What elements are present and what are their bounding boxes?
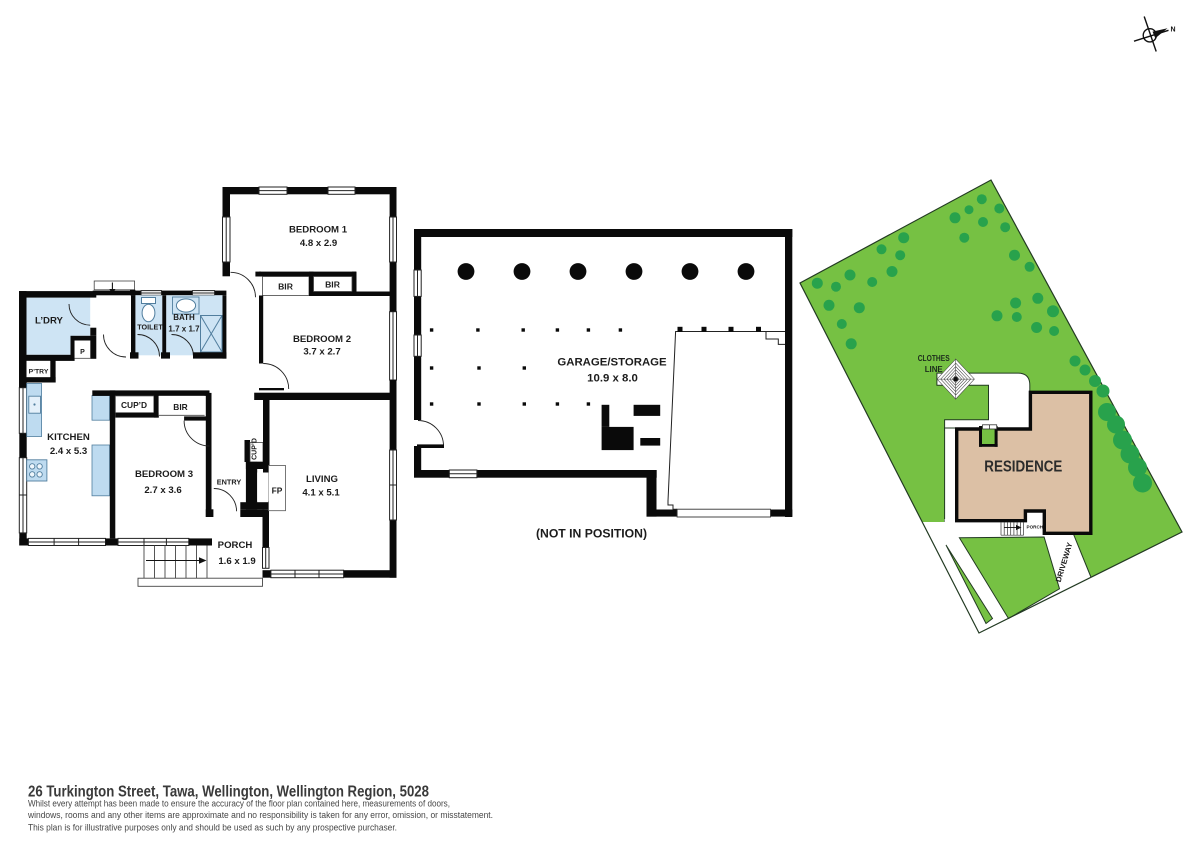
svg-text:GARAGE/STORAGE: GARAGE/STORAGE bbox=[557, 357, 667, 369]
svg-text:4.1 x 5.1: 4.1 x 5.1 bbox=[302, 488, 340, 499]
svg-text:BEDROOM 3: BEDROOM 3 bbox=[135, 469, 193, 480]
svg-text:This plan is for illustrative: This plan is for illustrative purposes o… bbox=[28, 823, 397, 833]
svg-text:Whilst every attempt has been: Whilst every attempt has been made to en… bbox=[28, 799, 450, 809]
svg-text:2.7 x 3.6: 2.7 x 3.6 bbox=[144, 485, 181, 496]
svg-text:LIVING: LIVING bbox=[306, 474, 338, 485]
svg-text:CUP’D: CUP’D bbox=[252, 438, 259, 460]
svg-text:BEDROOM 2: BEDROOM 2 bbox=[293, 334, 351, 345]
svg-text:BIR: BIR bbox=[278, 282, 294, 292]
svg-text:ENTRY: ENTRY bbox=[217, 478, 242, 487]
svg-text:FP: FP bbox=[272, 486, 283, 496]
svg-text:3.7 x 2.7: 3.7 x 2.7 bbox=[303, 347, 340, 358]
svg-text:TOILET: TOILET bbox=[137, 323, 163, 332]
svg-text:P’TRY: P’TRY bbox=[29, 369, 49, 376]
svg-text:L’DRY: L’DRY bbox=[35, 316, 63, 327]
svg-text:1.7 x 1.7: 1.7 x 1.7 bbox=[168, 325, 200, 334]
svg-text:2.4 x 5.3: 2.4 x 5.3 bbox=[50, 446, 87, 457]
svg-text:CLOTHES: CLOTHES bbox=[918, 354, 951, 363]
svg-text:BIR: BIR bbox=[173, 402, 187, 412]
svg-text:P: P bbox=[80, 349, 85, 356]
svg-text:windows, rooms and any other i: windows, rooms and any other items are a… bbox=[27, 810, 493, 820]
svg-text:N: N bbox=[1171, 27, 1176, 34]
svg-text:4.8 x 2.9: 4.8 x 2.9 bbox=[300, 238, 337, 249]
svg-text:RESIDENCE: RESIDENCE bbox=[984, 459, 1062, 476]
svg-text:BIR: BIR bbox=[325, 280, 341, 290]
svg-text:PORCH: PORCH bbox=[218, 540, 253, 551]
svg-text:CUP’D: CUP’D bbox=[121, 400, 147, 410]
svg-text:KITCHEN: KITCHEN bbox=[47, 432, 90, 443]
svg-text:BEDROOM 1: BEDROOM 1 bbox=[289, 225, 348, 236]
svg-text:LINE: LINE bbox=[925, 365, 944, 374]
svg-text:1.6 x 1.9: 1.6 x 1.9 bbox=[218, 556, 255, 567]
svg-text:PORCH: PORCH bbox=[1027, 525, 1044, 530]
svg-text:BATH: BATH bbox=[173, 313, 195, 322]
svg-text:(NOT IN POSITION): (NOT IN POSITION) bbox=[536, 527, 647, 541]
svg-text:10.9 x 8.0: 10.9 x 8.0 bbox=[587, 373, 638, 385]
